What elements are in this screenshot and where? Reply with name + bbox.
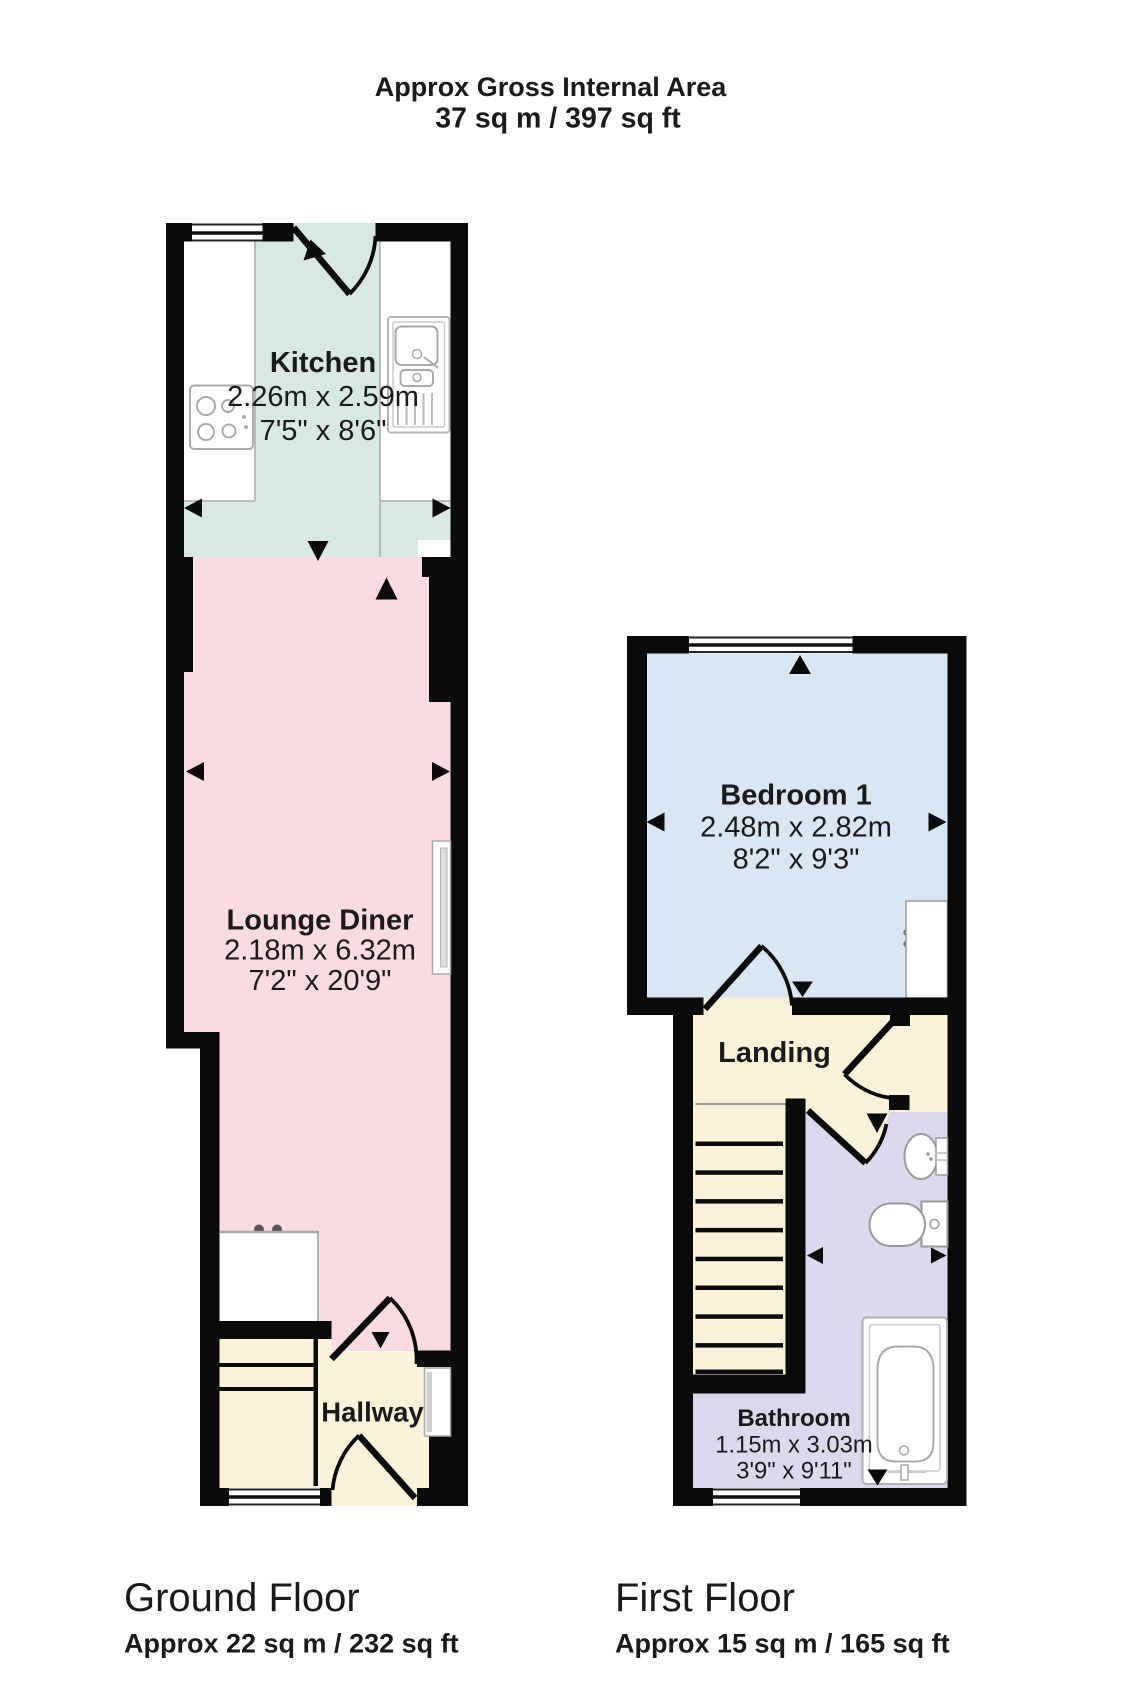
svg-text:First Floor: First Floor <box>615 1576 795 1620</box>
svg-text:7'2" x 20'9": 7'2" x 20'9" <box>249 965 392 997</box>
svg-text:2.26m x 2.59m: 2.26m x 2.59m <box>227 381 419 413</box>
svg-text:Landing: Landing <box>718 1037 831 1069</box>
svg-text:8'2" x 9'3": 8'2" x 9'3" <box>733 844 860 876</box>
svg-text:2.18m x 6.32m: 2.18m x 6.32m <box>224 935 416 967</box>
svg-text:Bathroom: Bathroom <box>737 1405 850 1432</box>
svg-text:Hallway: Hallway <box>321 1397 424 1428</box>
svg-text:Ground Floor: Ground Floor <box>124 1576 360 1620</box>
svg-text:Kitchen: Kitchen <box>270 347 376 379</box>
svg-text:Approx 15 sq m / 165 sq ft: Approx 15 sq m / 165 sq ft <box>615 1629 950 1659</box>
svg-text:2.48m x 2.82m: 2.48m x 2.82m <box>700 812 892 844</box>
svg-text:Lounge Diner: Lounge Diner <box>227 905 414 937</box>
svg-text:1.15m x 3.03m: 1.15m x 3.03m <box>715 1432 872 1459</box>
svg-text:Approx 22 sq m / 232 sq ft: Approx 22 sq m / 232 sq ft <box>124 1629 459 1659</box>
svg-text:3'9" x 9'11": 3'9" x 9'11" <box>736 1458 852 1485</box>
svg-text:Approx Gross Internal Area: Approx Gross Internal Area <box>375 72 728 102</box>
svg-text:37 sq m / 397 sq ft: 37 sq m / 397 sq ft <box>435 103 681 135</box>
svg-text:7'5" x 8'6": 7'5" x 8'6" <box>260 415 387 447</box>
svg-text:Bedroom 1: Bedroom 1 <box>720 780 871 812</box>
